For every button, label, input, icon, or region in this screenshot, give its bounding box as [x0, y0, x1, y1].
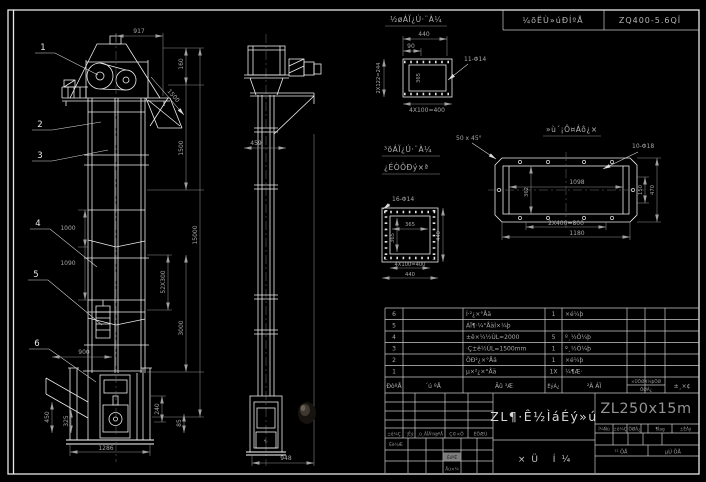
bom-table: ÐòºÅ ´ú ºÅ Ãû ³Æ ÊýÁ¿ ²Ä ÁÏ ×ÜÖØX¼þÖØ ÖØ…: [385, 308, 699, 473]
balloon-4: 4: [35, 219, 40, 229]
cad-drawing-sheet: ¼õËÙ»úÐÍºÅ ZQ400-5.6QÎ: [0, 0, 706, 482]
right-header-0: Í¼Ñù: [598, 426, 610, 433]
sig-approve-label: Åú×¼: [445, 466, 459, 473]
dim-160: 160: [178, 58, 185, 70]
balloon-2: 2: [37, 120, 42, 130]
bom-header-qty: ÊýÁ¿: [547, 382, 560, 390]
dim-inlet-side: 2X122=244: [376, 62, 382, 94]
bom-header-material: ²Ä ÁÏ: [587, 383, 602, 390]
dim-inlet-pitch: 4X100=400: [409, 107, 445, 114]
bom-4-qty: 1: [552, 357, 556, 364]
balloon-5: 5: [33, 270, 38, 280]
screen-smudge: [298, 402, 316, 424]
rev-header-count: ´¦Êý: [405, 430, 414, 438]
sig-design-label: Éè¼Æ: [389, 440, 403, 448]
bom-5-name: µ×²¿×°Åä: [466, 369, 497, 376]
detail-outlet-title1: ³öÁÏ¿Ú·¨À¼: [384, 145, 432, 154]
bom-row: 4 ±ê×¼½ÚL=2000 5 º¸½Ó¼þ: [392, 334, 591, 341]
sheet-no-label: µÚ ÕÅ: [665, 449, 681, 456]
dim-inlet-90: 90: [407, 43, 415, 50]
bom-header-remarks: ±¸×¢: [674, 383, 691, 390]
balloon-3: 3: [37, 151, 42, 161]
dim-base-pitch: 2X400=800: [548, 220, 584, 227]
dim-flange-459: 459: [250, 140, 262, 147]
detail-outlet-flange: ³öÁÏ¿Ú·¨À¼ ¿ÉÒÔÐý×ª 16-Φ14 365 365 440 4…: [382, 145, 443, 278]
dim-1090: 1090: [60, 260, 75, 267]
dim-outlet-pitch: 4X100=400: [394, 262, 425, 268]
drawing-type: ×Ü Í¼: [518, 453, 576, 465]
boot-mark: ¶·: [264, 439, 268, 445]
callout-chamfer: 50 x 45°: [456, 135, 482, 142]
bom-1-no: 5: [392, 323, 396, 330]
dim-85: 85: [176, 419, 183, 427]
dim-1500: 1500: [178, 140, 185, 155]
bom-0-name: Í·²¿×°Åä: [466, 311, 491, 318]
dim-head-width: 917: [133, 28, 145, 35]
bom-4-no: 2: [392, 357, 396, 364]
bom-header-no: ÐòºÅ: [386, 383, 402, 390]
dim-450: 450: [44, 411, 51, 423]
detail-base-plate: »ù´¡Ô¤Áô¿× 50 x 45° 10-Φ18 1098 362 150 …: [456, 125, 661, 240]
bom-header-weight-bottom: ÖØÁ¿: [640, 386, 652, 393]
drawing-name: ZL¶·Ê½ÌáÉý»ú: [490, 409, 597, 424]
bom-header-code: ´ú ºÅ: [425, 383, 442, 390]
right-header-3: ¶Ìag: [655, 426, 665, 433]
dim-1000: 1000: [60, 225, 75, 232]
right-header-2: ÖØÁ¿: [629, 426, 641, 433]
side-view-geometry: ¶·: [244, 34, 321, 466]
rev-header-sign: Ç©×Ö: [449, 431, 464, 438]
bom-row: 3 ·Ç±ê½ÚL=1500mm 1 º¸½Ó¼þ: [392, 346, 591, 353]
bom-0-material: ×é¼þ: [565, 311, 584, 318]
bom-3-qty: 1: [552, 346, 556, 353]
rev-header-date: ÈÕÆÚ: [474, 430, 487, 438]
dim-base-inner: 1098: [569, 179, 584, 186]
dim-base-right-outer: 470: [650, 185, 656, 195]
bom-row: 1 µ×²¿×°Åä 1X ¼¶Æ·: [392, 369, 582, 376]
dim-outlet-inner-w: 365: [405, 222, 415, 228]
model-number: ZL250x15m: [600, 401, 691, 417]
title-block: ±ê¼Ç ´¦Êý ¸ü¸ÄÎÄ¼þºÅ Ç©×Ö ÈÕÆÚ Éè¼Æ ÉóºË…: [385, 393, 699, 473]
bom-header-weight-top: ×ÜÖØX¼þÖØ: [631, 378, 662, 385]
dim-3000: 3000: [178, 320, 185, 335]
bom-5-qty: 1X: [550, 369, 558, 376]
strip-right-label: ZQ400-5.6QÎ: [619, 14, 681, 25]
dim-base-width: 1286: [98, 445, 113, 452]
detail-inlet-title: ½øÁÏ¿Ú·¨À¼: [390, 15, 442, 24]
dim-inlet-inner: 365: [416, 73, 422, 83]
bom-4-material: ×é¼þ: [565, 357, 584, 364]
bom-0-no: 6: [392, 311, 396, 318]
detail-outlet-title2: ¿ÉÒÔÐý×ª: [384, 163, 429, 172]
dim-base-inner-h: 362: [524, 187, 530, 197]
bom-1-name: ÁÏ¶·¼°ÅäÌ×¼þ: [466, 323, 511, 330]
front-view-geometry: [46, 34, 182, 462]
dim-outlet-side: 440: [436, 231, 442, 241]
bom-3-no: 3: [392, 346, 396, 353]
right-header-4: ±ÈÀý: [680, 425, 692, 433]
bom-4-name: ÖÐ²¿×°Åä: [466, 357, 497, 364]
dim-base-948: 948: [280, 455, 292, 462]
strip-left-label: ¼õËÙ»úÐÍºÅ: [522, 14, 583, 25]
bom-row: 2 ÖÐ²¿×°Åä 1 ×é¼þ: [392, 357, 583, 364]
bom-row: 6 Í·²¿×°Åä 1 ×é¼þ: [392, 311, 583, 318]
bom-2-material: º¸½Ó¼þ: [565, 334, 591, 341]
bom-2-no: 4: [392, 334, 396, 341]
bom-0-qty: 1: [552, 311, 556, 318]
detail-base-title: »ù´¡Ô¤Áô¿×: [546, 125, 598, 134]
dim-inlet-440: 440: [418, 31, 430, 38]
dim-total-height: 15000: [192, 225, 199, 244]
dim-hopper-width: 900: [78, 349, 90, 356]
callout-outlet-holes: 16-Φ14: [392, 196, 414, 203]
bom-5-no: 1: [392, 369, 396, 376]
bom-header-name: Ãû ³Æ: [495, 383, 513, 390]
bom-row: 5 ÁÏ¶·¼°ÅäÌ×¼þ: [392, 323, 511, 330]
top-title-strip: ¼õËÙ»úÐÍºÅ ZQ400-5.6QÎ: [503, 10, 699, 30]
rev-header-docno: ¸ü¸ÄÎÄ¼þºÅ: [417, 431, 443, 438]
dim-base-right-inner: 150: [638, 185, 644, 195]
dim-base-width: 1180: [569, 230, 584, 237]
detail-inlet-flange: ½øÁÏ¿Ú·¨À¼ 440 90 2X122=244 365 4X100=40…: [376, 15, 486, 114]
balloon-1: 1: [40, 43, 45, 53]
rev-header-mark: ±ê¼Ç: [387, 431, 400, 438]
callout-inlet-holes: 11-Φ14: [464, 56, 486, 63]
callout-base-holes: 10-Φ18: [632, 143, 654, 150]
dim-outlet-width: 440: [405, 272, 415, 278]
sheets-total-label: ¹² ÕÅ: [615, 449, 629, 456]
dim-325: 325: [63, 415, 70, 427]
bom-3-name: ·Ç±ê½ÚL=1500mm: [466, 346, 527, 353]
right-header-1: ±ê¼Ç: [613, 426, 626, 433]
bom-2-qty: 5: [552, 334, 556, 341]
dim-outlet-inner-h: 365: [390, 233, 396, 243]
balloon-6: 6: [34, 339, 39, 349]
bom-3-material: º¸½Ó¼þ: [565, 346, 591, 353]
bom-2-name: ±ê×¼½ÚL=2000: [466, 334, 520, 341]
bom-5-material: ¼¶Æ·: [565, 369, 582, 376]
dim-bucket-pitch: 52X300: [160, 270, 167, 293]
dim-240: 240: [154, 403, 161, 415]
